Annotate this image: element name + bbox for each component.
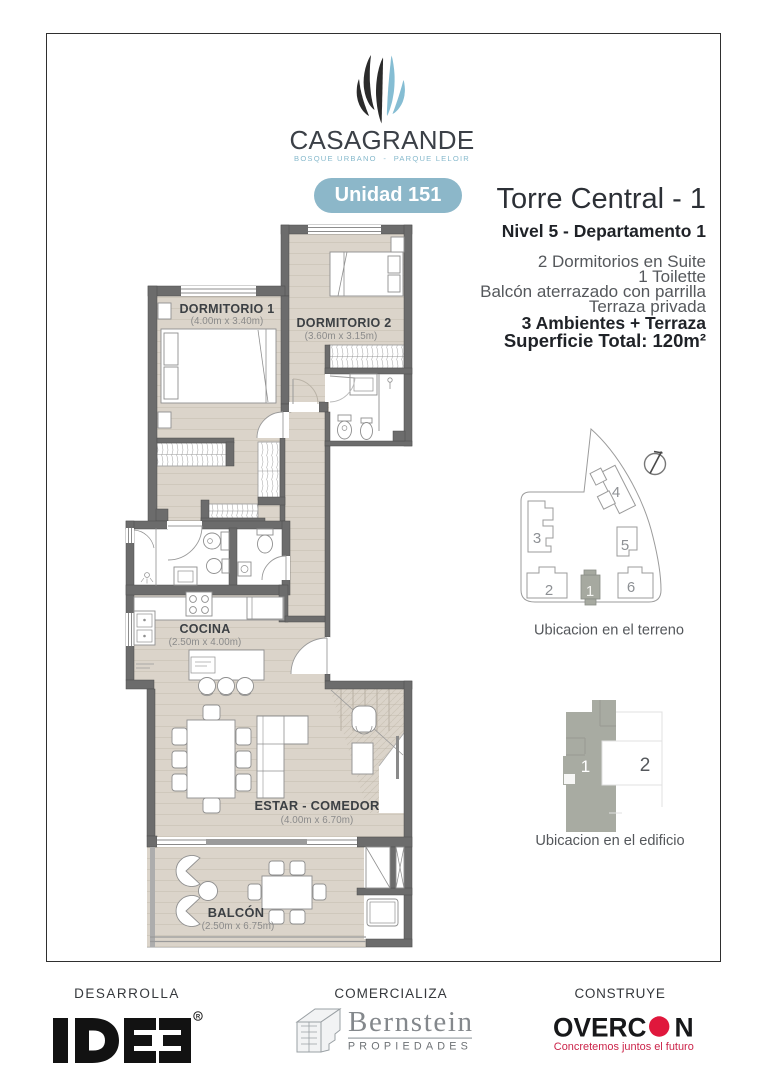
svg-text:Concretemos juntos el futuro: Concretemos juntos el futuro [554, 1041, 694, 1053]
svg-text:PROPIEDADES: PROPIEDADES [348, 1041, 472, 1053]
svg-text:Bernstein: Bernstein [348, 1006, 473, 1038]
svg-text:N: N [675, 1013, 694, 1043]
svg-text:OVERC: OVERC [553, 1013, 647, 1043]
svg-text:R: R [196, 1015, 201, 1021]
